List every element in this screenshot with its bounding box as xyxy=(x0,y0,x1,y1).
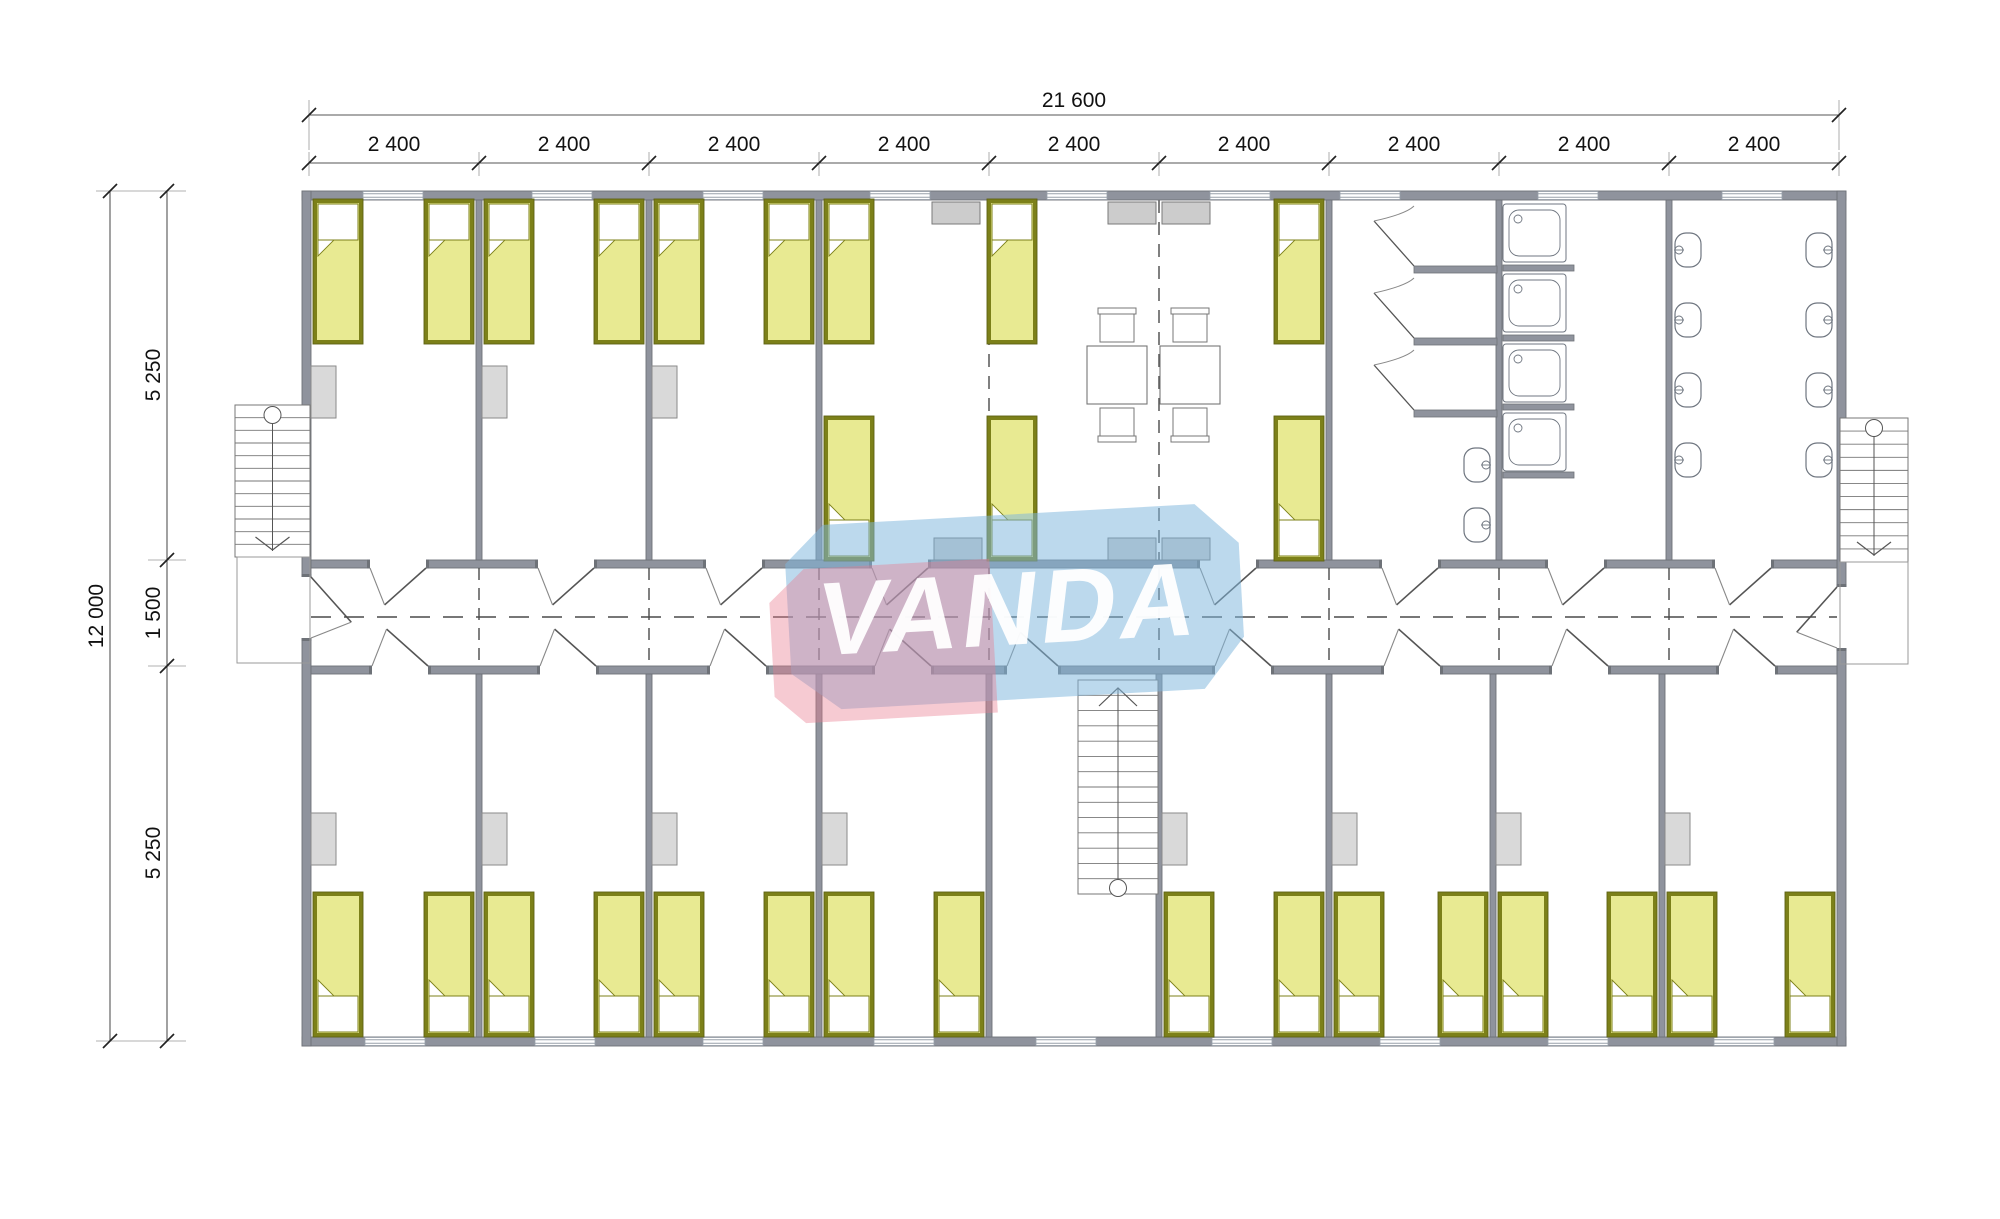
door-opening xyxy=(1837,587,1847,648)
counter-cabinet xyxy=(932,202,980,224)
wall xyxy=(816,674,822,1037)
door xyxy=(1549,629,1611,674)
stair-start-post xyxy=(264,407,281,424)
bed xyxy=(934,892,984,1037)
washbasin xyxy=(1464,448,1491,482)
door-swing xyxy=(1382,568,1397,605)
bed-pillow xyxy=(1279,996,1319,1032)
door-opening xyxy=(540,666,596,675)
counter-cabinet xyxy=(1108,202,1156,224)
door-jamb xyxy=(1712,560,1715,569)
dim-label-module: 2 400 xyxy=(1388,133,1441,156)
door xyxy=(369,629,431,674)
bed-pillow xyxy=(769,204,809,240)
door-swing xyxy=(1548,568,1563,605)
door-opening xyxy=(706,560,762,569)
shower-partition xyxy=(1503,472,1574,478)
dim-label-module: 2 400 xyxy=(878,133,931,156)
bed-pillow xyxy=(489,996,529,1032)
wall xyxy=(816,200,822,560)
door-jamb xyxy=(1604,560,1607,569)
door-opening xyxy=(1715,560,1771,569)
shower-tray xyxy=(1503,413,1566,471)
bed xyxy=(987,199,1037,344)
window xyxy=(363,192,423,200)
bed xyxy=(1785,892,1835,1037)
window-gap xyxy=(1714,1038,1774,1046)
door-jamb xyxy=(367,560,370,569)
door-swing xyxy=(540,629,555,666)
bed xyxy=(824,199,874,344)
chair-seat xyxy=(1100,408,1134,440)
bed-pillow xyxy=(1672,996,1712,1032)
bed-pillow xyxy=(318,996,358,1032)
bed-pillow xyxy=(1790,996,1830,1032)
window xyxy=(1538,192,1598,200)
door-jamb xyxy=(1837,648,1847,651)
door-jamb xyxy=(1256,560,1259,569)
shower-tray-basin xyxy=(1509,419,1560,465)
wall xyxy=(1496,200,1502,560)
brand-watermark: VANDA xyxy=(765,502,1247,725)
washbasin xyxy=(1674,233,1701,267)
window xyxy=(703,192,763,200)
door-leaf xyxy=(1730,568,1771,605)
door-swing xyxy=(710,629,725,666)
chair-back xyxy=(1098,308,1136,314)
door-leaf xyxy=(725,629,766,666)
door-leaf xyxy=(385,568,426,605)
door-opening xyxy=(1548,560,1604,569)
door-jamb xyxy=(594,560,597,569)
stall-partition xyxy=(1414,410,1497,417)
wall xyxy=(986,674,992,1037)
bed xyxy=(1498,892,1548,1037)
door-opening xyxy=(1719,666,1775,675)
window-gap xyxy=(1380,1038,1440,1046)
chair xyxy=(1098,308,1136,342)
stall-door-leaf xyxy=(1374,293,1414,338)
stair-central xyxy=(1078,680,1158,897)
brand-watermark-group: VANDA xyxy=(765,502,1247,725)
washbasin xyxy=(1806,373,1833,407)
bed-pillow xyxy=(599,996,639,1032)
washbasin xyxy=(1674,303,1701,337)
wardrobe-cabinet xyxy=(822,813,847,865)
door-swing xyxy=(1797,632,1837,648)
stall-door-swing xyxy=(1374,278,1414,293)
door-opening xyxy=(1382,560,1438,569)
washbasin xyxy=(1806,443,1833,477)
stair-right xyxy=(1840,418,1908,562)
door-jamb xyxy=(1381,666,1384,675)
door xyxy=(1545,560,1607,605)
bed xyxy=(764,892,814,1037)
bed xyxy=(654,199,704,344)
bed xyxy=(313,199,363,344)
door xyxy=(703,560,765,605)
door-leaf xyxy=(311,577,351,622)
shower-tray-basin xyxy=(1509,350,1560,396)
window xyxy=(1714,1038,1774,1046)
door xyxy=(707,629,769,674)
wall xyxy=(1666,200,1672,560)
door-swing xyxy=(1719,629,1734,666)
bed xyxy=(824,892,874,1037)
window-gap xyxy=(1212,1038,1272,1046)
dim-label-module: 2 400 xyxy=(1218,133,1271,156)
door-opening xyxy=(1552,666,1608,675)
bed-pillow xyxy=(769,996,809,1032)
door-jamb xyxy=(1716,666,1719,675)
door-jamb xyxy=(1440,666,1443,675)
window-gap xyxy=(532,192,592,200)
window xyxy=(874,1038,934,1046)
shower-partition xyxy=(1503,404,1574,410)
window xyxy=(532,192,592,200)
door-leaf xyxy=(1397,568,1438,605)
door-leaf xyxy=(1563,568,1604,605)
door-opening xyxy=(370,560,426,569)
bed xyxy=(424,892,474,1037)
door-leaf xyxy=(1399,629,1440,666)
bed-pillow xyxy=(992,204,1032,240)
door-jamb xyxy=(428,666,431,675)
wardrobe-cabinet xyxy=(311,813,336,865)
stair-start-post xyxy=(1866,420,1883,437)
dim-label-height-segment: 5 250 xyxy=(142,827,165,880)
door-jamb xyxy=(369,666,372,675)
bed xyxy=(594,199,644,344)
door xyxy=(1379,560,1441,605)
window xyxy=(1210,192,1270,200)
shower-tray-basin xyxy=(1509,210,1560,256)
door xyxy=(537,629,599,674)
door-jamb xyxy=(703,560,706,569)
door-opening xyxy=(710,666,766,675)
door-leaf xyxy=(387,629,428,666)
washbasin xyxy=(1464,508,1491,542)
wardrobe-cabinet xyxy=(1496,813,1521,865)
wardrobe-cabinet xyxy=(1162,813,1187,865)
shower-tray xyxy=(1503,204,1566,262)
bed xyxy=(1164,892,1214,1037)
chair-back xyxy=(1171,308,1209,314)
bed-pillow xyxy=(1279,520,1319,556)
dim-label-module: 2 400 xyxy=(1728,133,1781,156)
wall xyxy=(476,200,482,560)
window xyxy=(1212,1038,1272,1046)
stall-door-swing xyxy=(1374,206,1414,221)
floor-plan-drawing: 21 6002 4002 4002 4002 4002 4002 4002 40… xyxy=(0,0,2000,1219)
window xyxy=(1380,1038,1440,1046)
brand-logo-text: VANDA xyxy=(812,540,1207,678)
window-gap xyxy=(1210,192,1270,200)
chair-seat xyxy=(1173,310,1207,342)
door-opening xyxy=(538,560,594,569)
door-leaf xyxy=(553,568,594,605)
door-jamb xyxy=(1271,666,1274,675)
window xyxy=(535,1038,595,1046)
dim-label-module: 2 400 xyxy=(708,133,761,156)
window xyxy=(1036,1038,1096,1046)
window-gap xyxy=(1548,1038,1608,1046)
dim-label-total-width: 21 600 xyxy=(1042,89,1106,112)
bed-pillow xyxy=(318,204,358,240)
stair-start-post xyxy=(1110,880,1127,897)
door xyxy=(1712,560,1774,605)
door-leaf xyxy=(721,568,762,605)
stall-door-swing xyxy=(1374,350,1414,365)
door xyxy=(367,560,429,605)
dim-label-module: 2 400 xyxy=(368,133,421,156)
bed xyxy=(654,892,704,1037)
door xyxy=(302,574,352,641)
door-jamb xyxy=(1837,584,1847,587)
door-jamb xyxy=(1549,666,1552,675)
bed xyxy=(1438,892,1488,1037)
bed-pillow xyxy=(599,204,639,240)
door-leaf xyxy=(1734,629,1775,666)
door xyxy=(535,560,597,605)
bed-pillow xyxy=(1503,996,1543,1032)
stall-door-leaf xyxy=(1374,221,1414,266)
bed-pillow xyxy=(1279,204,1319,240)
shower-tray-basin xyxy=(1509,280,1560,326)
bed-pillow xyxy=(1443,996,1483,1032)
door-jamb xyxy=(707,666,710,675)
door-swing xyxy=(1384,629,1399,666)
washbasin xyxy=(1806,233,1833,267)
bed xyxy=(1274,199,1324,344)
dim-label-height-segment: 1 500 xyxy=(142,587,165,640)
chair xyxy=(1098,408,1136,442)
door-swing xyxy=(311,622,351,638)
washbasin xyxy=(1674,443,1701,477)
window-gap xyxy=(1538,192,1598,200)
chair-back xyxy=(1098,436,1136,442)
dim-label-height-segment: 5 250 xyxy=(142,349,165,402)
door-swing xyxy=(1552,629,1567,666)
door-leaf xyxy=(555,629,596,666)
window-gap xyxy=(1036,1038,1096,1046)
chair xyxy=(1171,408,1209,442)
door-opening xyxy=(1215,666,1271,675)
counter-cabinet xyxy=(1162,202,1210,224)
stall-partition xyxy=(1414,338,1497,345)
door-jamb xyxy=(1771,560,1774,569)
door-jamb xyxy=(1379,560,1382,569)
door-swing xyxy=(538,568,553,605)
bed-pillow xyxy=(829,996,869,1032)
entrance-landing xyxy=(237,557,310,663)
window-gap xyxy=(1722,192,1782,200)
window-gap xyxy=(870,192,930,200)
bed-pillow xyxy=(489,204,529,240)
bed xyxy=(1274,416,1324,561)
door-jamb xyxy=(766,666,769,675)
dim-label-module: 2 400 xyxy=(1048,133,1101,156)
door-jamb xyxy=(426,560,429,569)
window-gap xyxy=(1047,192,1107,200)
shower-partition xyxy=(1503,335,1574,341)
stall-partition xyxy=(1414,266,1497,273)
bed-pillow xyxy=(659,204,699,240)
door-jamb xyxy=(1545,560,1548,569)
bed-pillow xyxy=(659,996,699,1032)
window xyxy=(1047,192,1107,200)
door-jamb xyxy=(596,666,599,675)
wardrobe-cabinet xyxy=(482,813,507,865)
door-jamb xyxy=(762,560,765,569)
window xyxy=(365,1038,425,1046)
bed-pillow xyxy=(1339,996,1379,1032)
door xyxy=(1381,629,1443,674)
wardrobe-cabinet xyxy=(1665,813,1690,865)
door-swing xyxy=(1715,568,1730,605)
bed xyxy=(484,199,534,344)
chair-seat xyxy=(1173,408,1207,440)
bed-pillow xyxy=(939,996,979,1032)
window xyxy=(1340,192,1400,200)
wall xyxy=(646,200,652,560)
window-gap xyxy=(874,1038,934,1046)
bed-pillow xyxy=(1169,996,1209,1032)
door-jamb xyxy=(1608,666,1611,675)
entrance-landing xyxy=(1840,562,1908,664)
wardrobe-cabinet xyxy=(482,366,507,418)
stair-left xyxy=(235,405,310,557)
shower-tray xyxy=(1503,344,1566,402)
window-gap xyxy=(535,1038,595,1046)
washbasin xyxy=(1806,303,1833,337)
wall xyxy=(1490,674,1496,1037)
floor-plan-canvas: 21 6002 4002 4002 4002 4002 4002 4002 40… xyxy=(0,0,2000,1219)
door-swing xyxy=(370,568,385,605)
door-jamb xyxy=(1775,666,1778,675)
bed xyxy=(1667,892,1717,1037)
bed xyxy=(1274,892,1324,1037)
bed xyxy=(1607,892,1657,1037)
door-jamb xyxy=(535,560,538,569)
door xyxy=(1716,629,1778,674)
window xyxy=(1548,1038,1608,1046)
stall-door-leaf xyxy=(1374,365,1414,410)
window-gap xyxy=(365,1038,425,1046)
window xyxy=(1722,192,1782,200)
wardrobe-cabinet xyxy=(652,813,677,865)
bed xyxy=(424,199,474,344)
washbasin xyxy=(1674,373,1701,407)
door-leaf xyxy=(1797,587,1837,632)
window-gap xyxy=(1340,192,1400,200)
door-jamb xyxy=(1438,560,1441,569)
dining-table xyxy=(1087,346,1147,404)
dim-label-module: 2 400 xyxy=(1558,133,1611,156)
window xyxy=(870,192,930,200)
bed-pillow xyxy=(829,204,869,240)
wall xyxy=(476,674,482,1037)
door-jamb xyxy=(537,666,540,675)
chair-back xyxy=(1171,436,1209,442)
chair xyxy=(1171,308,1209,342)
bed-pillow xyxy=(429,204,469,240)
door-swing xyxy=(706,568,721,605)
dining-table xyxy=(1160,346,1220,404)
wardrobe-cabinet xyxy=(652,366,677,418)
bed-pillow xyxy=(1612,996,1652,1032)
door-leaf xyxy=(1567,629,1608,666)
door-opening xyxy=(372,666,428,675)
wardrobe-cabinet xyxy=(311,366,336,418)
bed xyxy=(484,892,534,1037)
chair-seat xyxy=(1100,310,1134,342)
wall xyxy=(1326,200,1332,560)
window-gap xyxy=(703,192,763,200)
bed xyxy=(313,892,363,1037)
door-swing xyxy=(372,629,387,666)
bed-pillow xyxy=(429,996,469,1032)
door-opening xyxy=(1384,666,1440,675)
wardrobe-cabinet xyxy=(1332,813,1357,865)
sanitary-fixtures xyxy=(1374,204,1833,542)
dim-label-module: 2 400 xyxy=(538,133,591,156)
window-gap xyxy=(363,192,423,200)
wall xyxy=(646,674,652,1037)
bed xyxy=(594,892,644,1037)
window-gap xyxy=(703,1038,763,1046)
bed xyxy=(1334,892,1384,1037)
shower-tray xyxy=(1503,274,1566,332)
wall xyxy=(1659,674,1665,1037)
wall xyxy=(1326,674,1332,1037)
bed xyxy=(764,199,814,344)
window xyxy=(703,1038,763,1046)
shower-partition xyxy=(1503,265,1574,271)
dim-label-total-height: 12 000 xyxy=(85,584,108,648)
